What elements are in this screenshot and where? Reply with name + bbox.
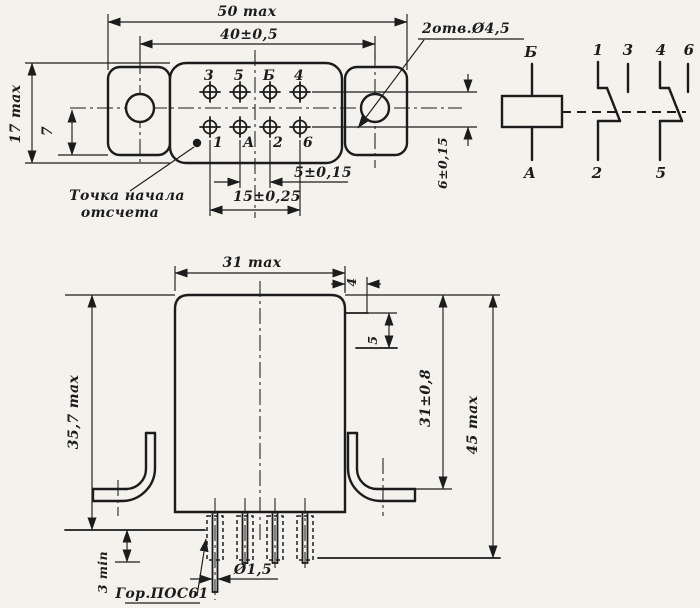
dim-4-label: 4 [344,277,359,286]
pin-label-4: 4 [294,68,304,84]
solder-note: Гор.ПОС61 [114,539,208,603]
schematic-label-b: Б [523,43,537,61]
relay-body-outline-top [170,63,342,163]
dim-45-max: 45 max [465,295,493,558]
dim-6-row-gap-label: 6±0,15 [435,137,450,189]
coil-symbol [502,96,562,127]
relay-datasheet-page: 3 5 Б 4 1 А 2 6 50 max 40±0,5 17 max [0,0,700,608]
reference-note-line2: отсчета [81,205,159,221]
relay-technical-drawing: 3 5 Б 4 1 А 2 6 50 max 40±0,5 17 max [0,0,700,608]
mounting-hole-left [126,94,154,122]
holes-note-label: 2отв.Ø4,5 [421,21,510,37]
dim-50-max-label: 50 max [218,4,277,20]
dim-357-max-label: 35,7 max [66,375,82,450]
schematic-label-1: 1 [593,41,604,59]
dim-40-label: 40±0,5 [220,27,278,43]
top-view: 3 5 Б 4 1 А 2 6 50 max 40±0,5 17 max [8,4,524,221]
dim-31-mount: 31±0,8 [415,295,452,489]
dim-pin-diameter-label: Ø1,5 [233,562,272,578]
dim-15-span-label: 15±0,25 [233,189,301,205]
solder-note-label: Гор.ПОС61 [114,586,208,602]
bracket-left [93,433,155,501]
pin-label-2: 2 [272,135,283,151]
dim-7-label: 7 [40,126,56,136]
dim-3-min: 3 min [95,530,140,593]
dim-17-max-label: 17 max [8,84,24,143]
dim-5-pitch-label: 5±0,15 [294,165,352,181]
reference-note-line1: Точка начала [69,188,185,204]
dim-5-label: 5 [365,335,380,344]
schematic-label-5: 5 [656,164,667,182]
dim-45-max-label: 45 max [465,395,481,454]
schematic-label-4: 4 [656,41,667,59]
schematic-view: Б А 1 3 4 6 2 5 [502,41,695,182]
dim-40: 40±0,5 [140,27,375,60]
front-pins [207,498,313,600]
dim-pin-diameter: Ø1,5 [190,562,278,579]
pin-label-5: 5 [234,68,244,84]
dim-31-mount-label: 31±0,8 [418,369,434,427]
pin-label-a: А [242,135,255,151]
schematic-label-3: 3 [623,41,634,59]
pin-label-b: Б [262,68,275,84]
front-view: 4 5 31 max [65,255,500,603]
dim-7: 7 [40,110,108,155]
dim-31-max-label: 31 max [223,255,282,271]
bracket-right [348,433,415,501]
schematic-label-6: 6 [684,41,695,59]
reference-point-dot [193,139,201,147]
pin-label-6: 6 [303,135,313,151]
front-pin-1 [207,498,223,600]
dim-357-max: 35,7 max [66,295,92,530]
pin-label-1: 1 [213,135,223,151]
dim-3-min-label: 3 min [95,551,110,593]
schematic-label-2: 2 [591,164,603,182]
pin-label-3: 3 [204,68,214,84]
schematic-label-a: А [523,164,537,182]
